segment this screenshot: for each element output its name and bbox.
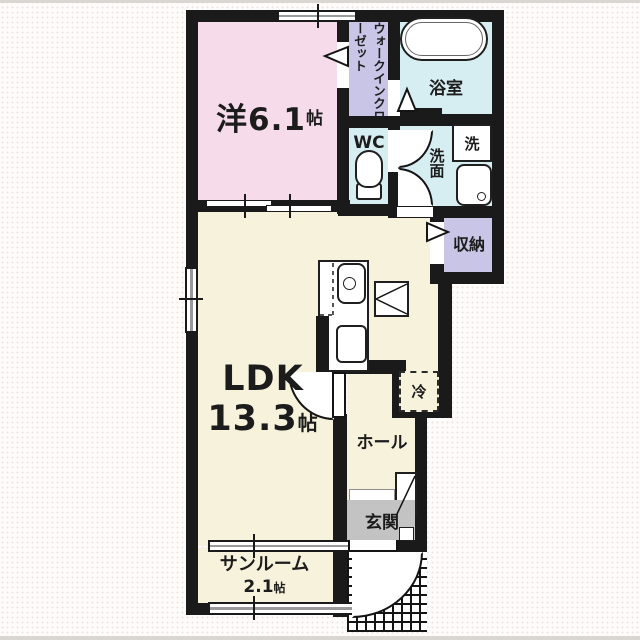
room-label-ldk: LDK 13.3帖 — [193, 358, 333, 444]
room-label-bath: 浴室 — [410, 75, 482, 97]
washer-label: 洗 — [464, 133, 479, 154]
western-size: 洋6.1 — [216, 94, 306, 139]
floor-plan: 洗 冷 洋6.1帖 ウォークインクローゼット 浴室 WC 洗面 — [0, 0, 640, 640]
room-label-western: 洋6.1帖 — [200, 95, 340, 137]
sliding-door-panel — [266, 205, 332, 212]
lavatory-label: 洗面 — [427, 148, 448, 178]
wic-label: ウォークインクローゼット — [350, 22, 388, 122]
room-label-wc: WC — [350, 132, 388, 154]
sunroom-label: サンルーム — [220, 553, 309, 576]
window-tick — [317, 4, 319, 28]
kitchen-counter-dashline — [332, 263, 334, 315]
western-unit: 帖 — [306, 104, 324, 129]
sink-icon — [456, 164, 492, 206]
washing-machine-icon: 洗 — [452, 124, 492, 162]
room-label-storage: 収納 — [444, 232, 494, 254]
stove-icon — [336, 325, 367, 363]
door-opening-lavatory — [397, 207, 433, 217]
storage-label: 収納 — [453, 231, 485, 255]
room-label-hall: ホール — [347, 428, 417, 452]
kitchen-faucet-icon — [343, 277, 356, 290]
door-opening-bath — [388, 80, 400, 116]
room-label-sunroom: サンルーム 2.1帖 — [198, 551, 331, 601]
sliding-door-tick — [244, 194, 246, 218]
wall — [333, 414, 347, 617]
door-opening-storage — [430, 222, 444, 264]
door-leaf-entrance — [348, 538, 398, 552]
window-tick — [179, 298, 203, 300]
sliding-door-panel — [206, 200, 272, 207]
door-leaf-ldk-hall — [332, 372, 346, 418]
room-label-entrance: 玄関 — [350, 507, 414, 533]
entrance-label: 玄関 — [365, 508, 399, 533]
toilet-icon — [355, 150, 383, 188]
window-ldk-left — [185, 267, 198, 333]
counter-box-icon — [374, 281, 409, 317]
sliding-door-tick — [289, 194, 291, 218]
bath-door-sill — [400, 108, 442, 116]
sunroom-size: 2.1 — [243, 577, 273, 597]
ldk-size: 13.3 — [207, 399, 297, 439]
room-label-wic: ウォークインクローゼット — [350, 22, 388, 122]
bath-label: 浴室 — [429, 74, 463, 99]
frame-line-top — [0, 0, 640, 3]
wc-label: WC — [353, 133, 384, 153]
ldk-unit: 帖 — [298, 411, 319, 435]
sink-drain-icon — [477, 192, 486, 201]
ldk-label: LDK — [222, 359, 303, 399]
sunroom-unit: 帖 — [274, 581, 286, 595]
door-opening-wic — [337, 42, 349, 88]
sunroom-size-line: 2.1帖 — [243, 576, 285, 600]
bathtub-icon — [400, 17, 488, 61]
room-label-lavatory: 洗面 — [426, 138, 448, 188]
window-sunroom-bottom — [208, 602, 361, 615]
wall — [438, 278, 452, 418]
ldk-size-line: 13.3帖 — [207, 399, 318, 443]
refrigerator-icon: 冷 — [399, 371, 439, 412]
fridge-label: 冷 — [411, 381, 426, 402]
hall-label: ホール — [357, 428, 408, 453]
frame-line-bottom — [0, 636, 640, 640]
